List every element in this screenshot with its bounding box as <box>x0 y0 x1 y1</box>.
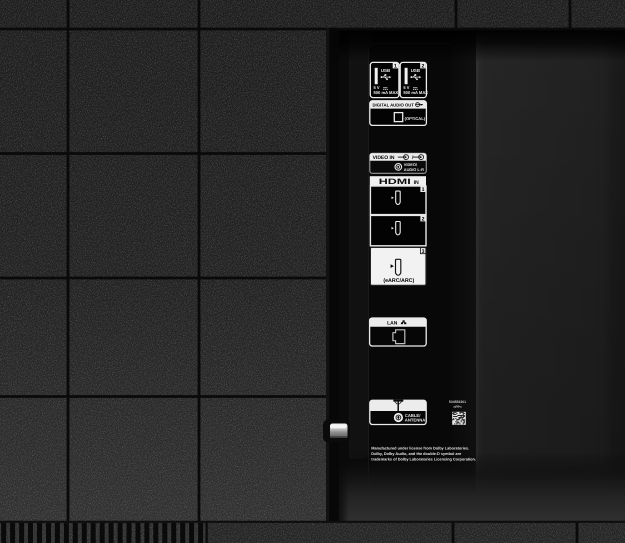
svg-text:1: 1 <box>422 187 425 193</box>
svg-text:3: 3 <box>422 249 425 255</box>
svg-text:AUDIO L-R: AUDIO L-R <box>404 167 424 172</box>
svg-text:IN: IN <box>414 180 419 186</box>
svg-text:DIGITAL AUDIO OUT: DIGITAL AUDIO OUT <box>373 103 415 108</box>
svg-text:500 mA MAX: 500 mA MAX <box>374 90 399 95</box>
svg-text:1: 1 <box>394 64 397 70</box>
svg-text:HDMI: HDMI <box>379 178 411 187</box>
svg-text:VIDEO IN: VIDEO IN <box>373 155 395 161</box>
svg-text:trademarks of Dolby Laboratori: trademarks of Dolby Laboratories Licensi… <box>371 457 476 461</box>
svg-text:ANTENNA: ANTENNA <box>405 418 425 423</box>
svg-text:>PP<: >PP< <box>453 405 462 409</box>
svg-text:(OPTICAL): (OPTICAL) <box>405 116 426 121</box>
svg-text:2: 2 <box>422 64 425 70</box>
svg-text:USB: USB <box>381 68 390 73</box>
svg-text:Dolby, Dolby Audio, and the do: Dolby, Dolby Audio, and the double-D sym… <box>371 452 461 456</box>
svg-text:Manufactured under license fro: Manufactured under license from Dolby La… <box>371 447 469 451</box>
svg-text:504556301: 504556301 <box>449 400 466 404</box>
svg-text:USB: USB <box>411 68 420 73</box>
svg-text:2: 2 <box>422 217 425 223</box>
svg-text:LAN: LAN <box>387 321 398 327</box>
svg-text:500 mA MAX: 500 mA MAX <box>403 90 428 95</box>
svg-text:(eARC/ARC): (eARC/ARC) <box>383 278 414 284</box>
